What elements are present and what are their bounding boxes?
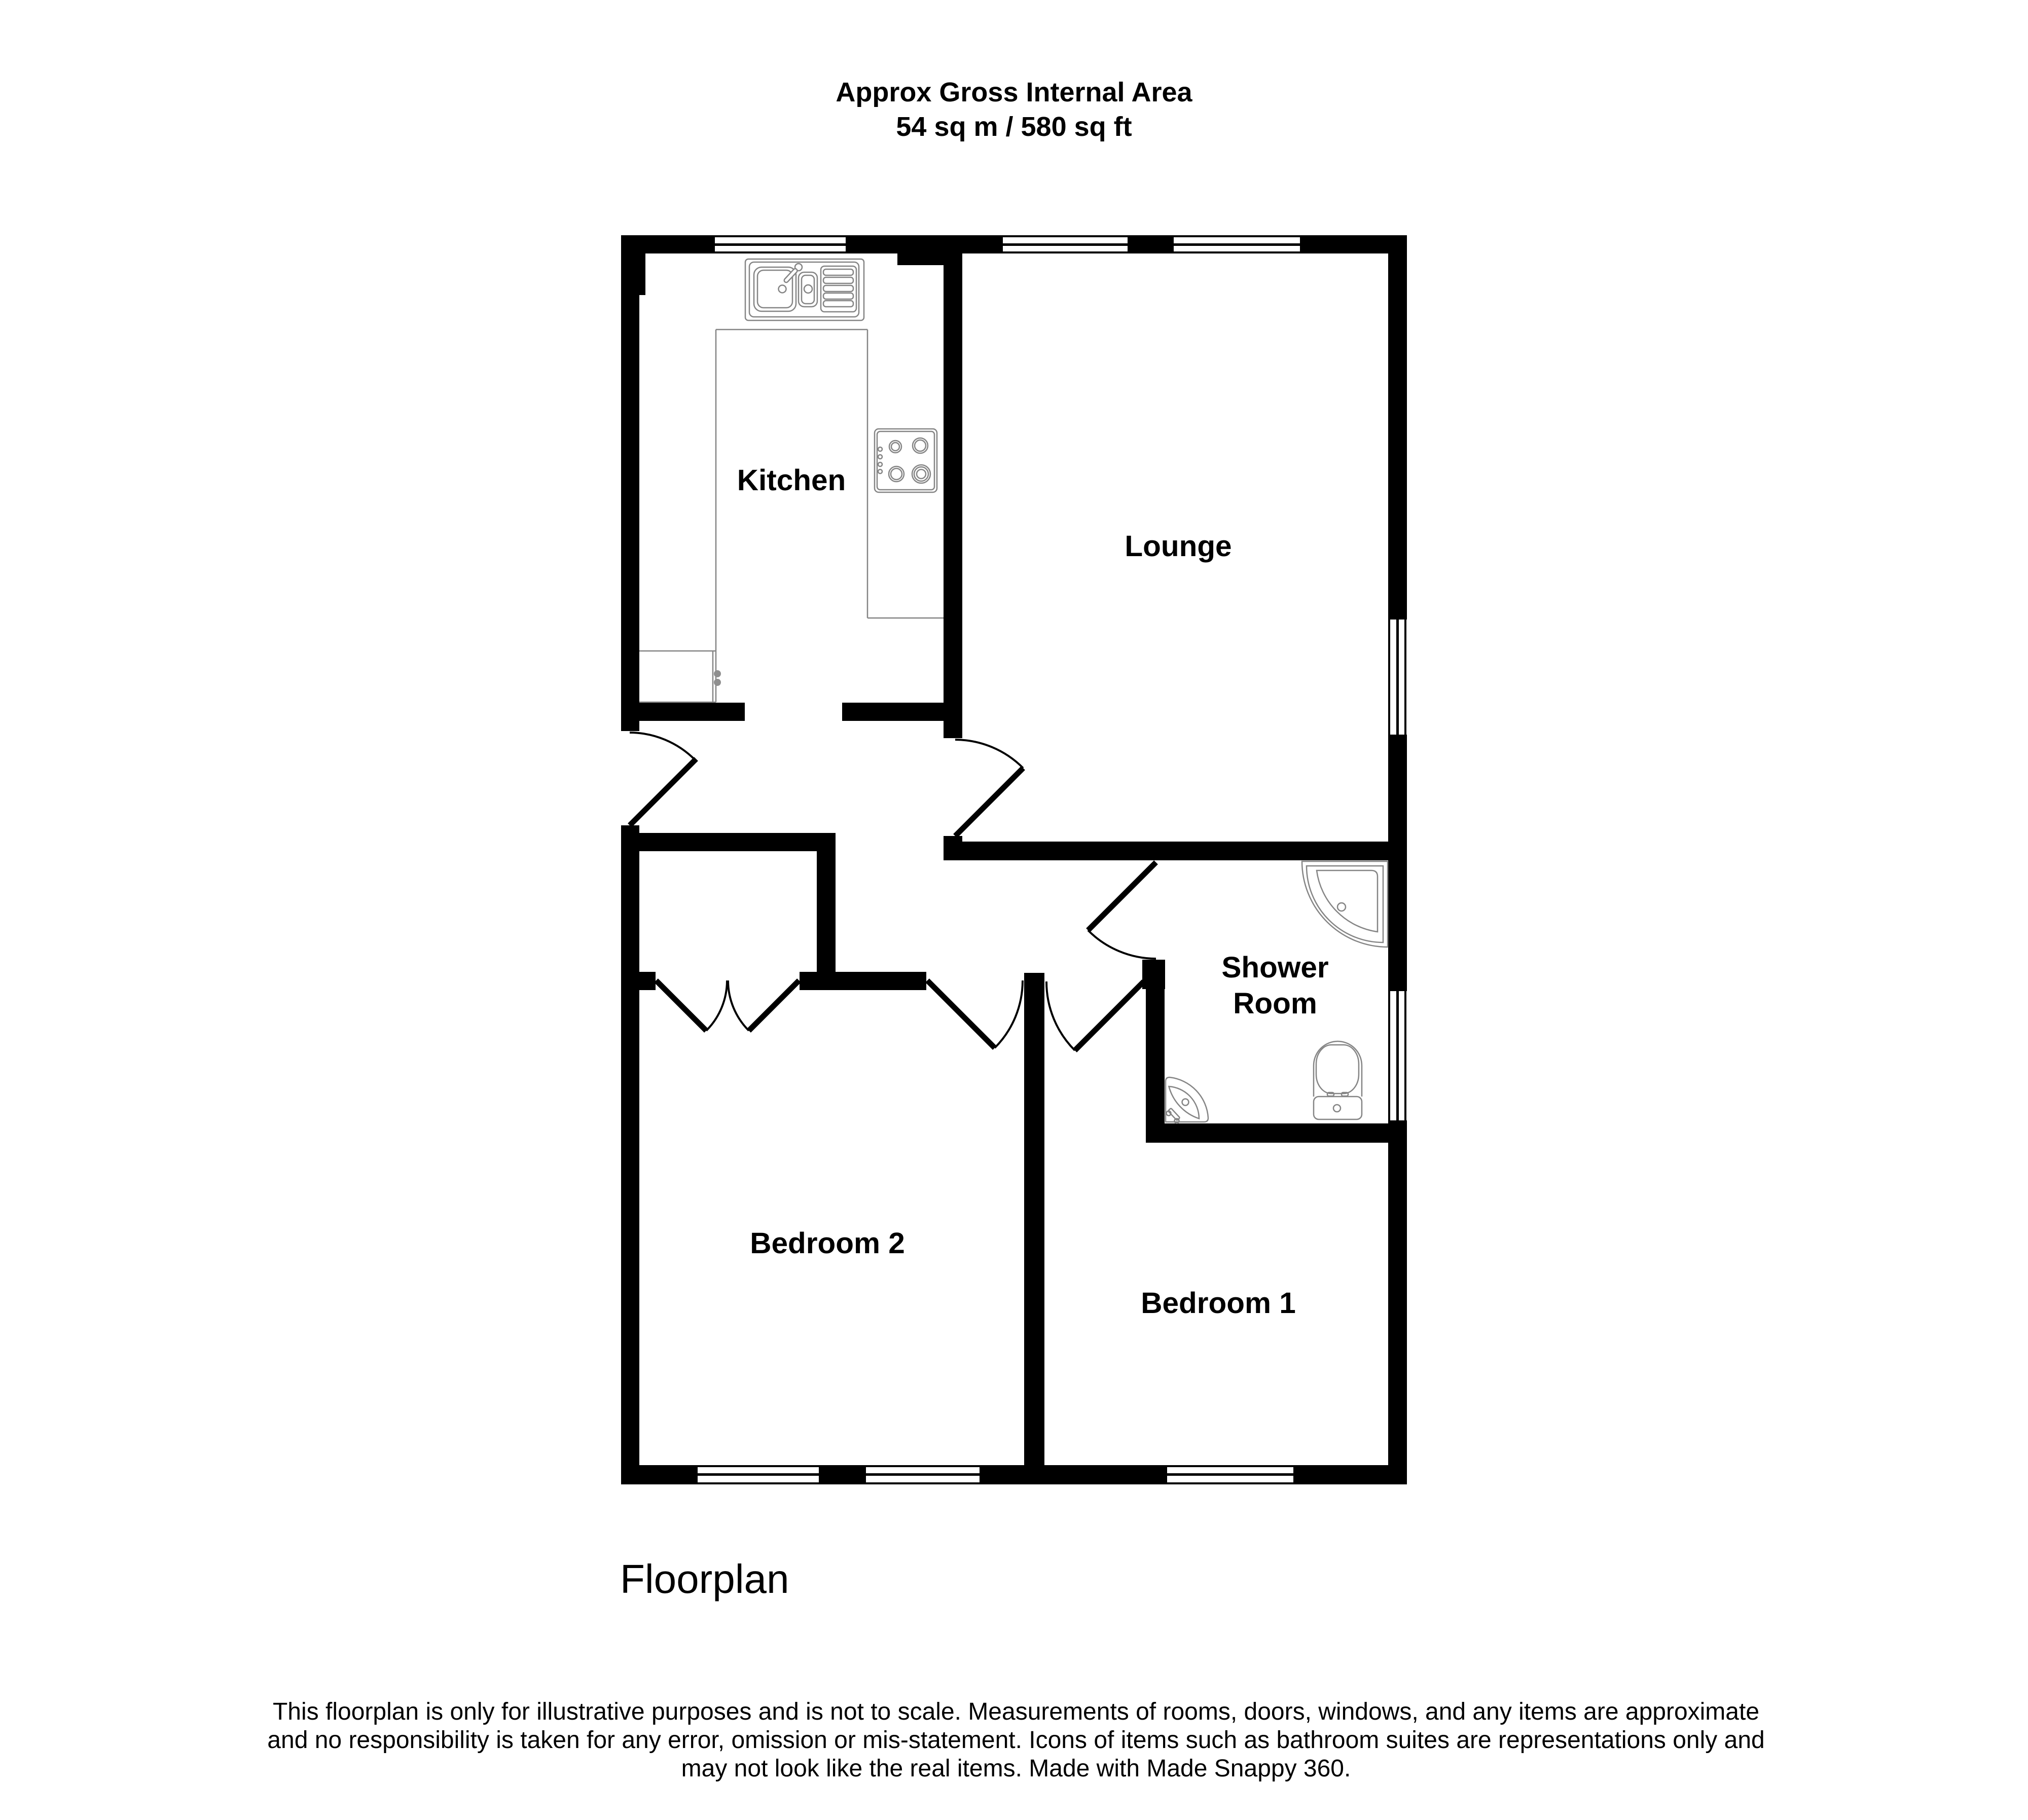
svg-text:Lounge: Lounge [1125,530,1232,563]
svg-text:This floorplan is only for ill: This floorplan is only for illustrative … [273,1698,1759,1725]
svg-text:Kitchen: Kitchen [737,464,846,497]
svg-text:and no responsibility is taken: and no responsibility is taken for any e… [267,1727,1764,1754]
svg-text:Floorplan: Floorplan [620,1556,789,1601]
svg-text:Bedroom 1: Bedroom 1 [1141,1287,1296,1320]
svg-text:Bedroom 2: Bedroom 2 [750,1227,905,1260]
svg-text:Room: Room [1233,987,1317,1020]
svg-text:may not look like the real ite: may not look like the real items. Made w… [681,1755,1351,1782]
svg-text:Shower: Shower [1221,951,1328,984]
svg-text:Approx Gross Internal Area: Approx Gross Internal Area [836,77,1192,107]
svg-text:54 sq m / 580 sq ft: 54 sq m / 580 sq ft [896,112,1132,142]
